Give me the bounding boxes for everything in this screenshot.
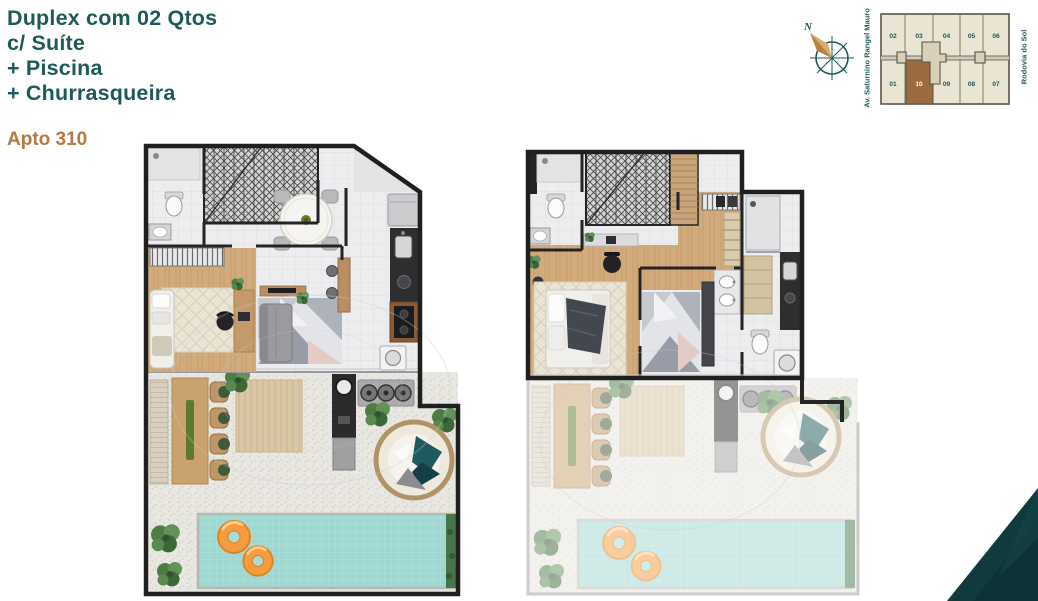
unit-cell-01: 01	[889, 81, 897, 88]
pool-float	[603, 527, 635, 559]
bbq-counter	[332, 374, 356, 470]
title-line-3: + Piscina	[7, 56, 217, 81]
toilet	[752, 334, 768, 354]
bath-shelf	[744, 256, 772, 314]
unit-cell-03: 03	[915, 33, 923, 40]
compass-icon: N	[796, 14, 868, 98]
apartment-label: Apto 310	[7, 129, 87, 151]
outdoor-table	[172, 378, 208, 484]
office-chair	[217, 314, 234, 331]
unit-cell-09: 09	[943, 81, 951, 88]
street-label-right: Rodovia do Sol	[1020, 30, 1029, 85]
gourmet-terrace	[146, 368, 458, 594]
geometric-rug	[642, 292, 700, 372]
title-line-1: Duplex com 02 Qtos	[7, 6, 217, 31]
title-line-4: + Churrasqueira	[7, 81, 217, 106]
toilet	[166, 196, 182, 216]
floor-plan-lower	[140, 140, 472, 601]
daybed-sofa	[150, 290, 174, 368]
wardrobe	[150, 248, 224, 266]
plant	[157, 562, 182, 587]
kitchen-sink	[395, 236, 412, 258]
round-daybed	[376, 422, 452, 498]
unit-cell-02: 02	[889, 33, 897, 40]
unit-key-plan: 02 03 04 05 06 01 10 09 08 07	[878, 10, 1016, 110]
staircase	[586, 153, 698, 225]
terrace-below-faded	[528, 374, 858, 594]
vanity-sink	[720, 294, 735, 306]
page-title: Duplex com 02 Qtos c/ Suíte + Piscina + …	[7, 6, 217, 106]
unit-cell-08: 08	[968, 81, 976, 88]
page: Duplex com 02 Qtos c/ Suíte + Piscina + …	[0, 0, 1038, 601]
dining-table	[274, 190, 338, 250]
office-chair	[603, 255, 621, 273]
suite-bedroom	[534, 282, 626, 380]
unit-cell-06: 06	[992, 33, 1000, 40]
outdoor-deck	[236, 380, 302, 452]
corner-accent	[943, 486, 1038, 601]
unit-cell-05: 05	[968, 33, 976, 40]
plant	[151, 524, 180, 552]
bedroom-office	[148, 248, 256, 372]
toilet	[548, 198, 564, 218]
unit-cell-10: 10	[915, 81, 923, 88]
suite-bed	[546, 290, 610, 368]
plant	[365, 402, 390, 427]
street-label-left: Av. Saturnino Rangel Mauro	[863, 8, 872, 108]
second-room	[640, 282, 714, 378]
grill	[358, 380, 414, 406]
pool-float	[218, 521, 250, 553]
unit-cell-07: 07	[992, 81, 1000, 88]
plant	[232, 278, 245, 290]
vanity-sink	[720, 276, 735, 288]
outdoor-bench	[150, 380, 168, 484]
pool-float	[243, 546, 272, 575]
fridge	[388, 194, 418, 226]
unit-cell-04: 04	[943, 33, 951, 40]
sofa	[260, 304, 292, 362]
pool-float	[632, 552, 661, 581]
title-line-2: c/ Suíte	[7, 31, 217, 56]
plant	[297, 292, 310, 304]
floor-plan-upper	[520, 140, 865, 601]
north-label: N	[803, 21, 813, 33]
